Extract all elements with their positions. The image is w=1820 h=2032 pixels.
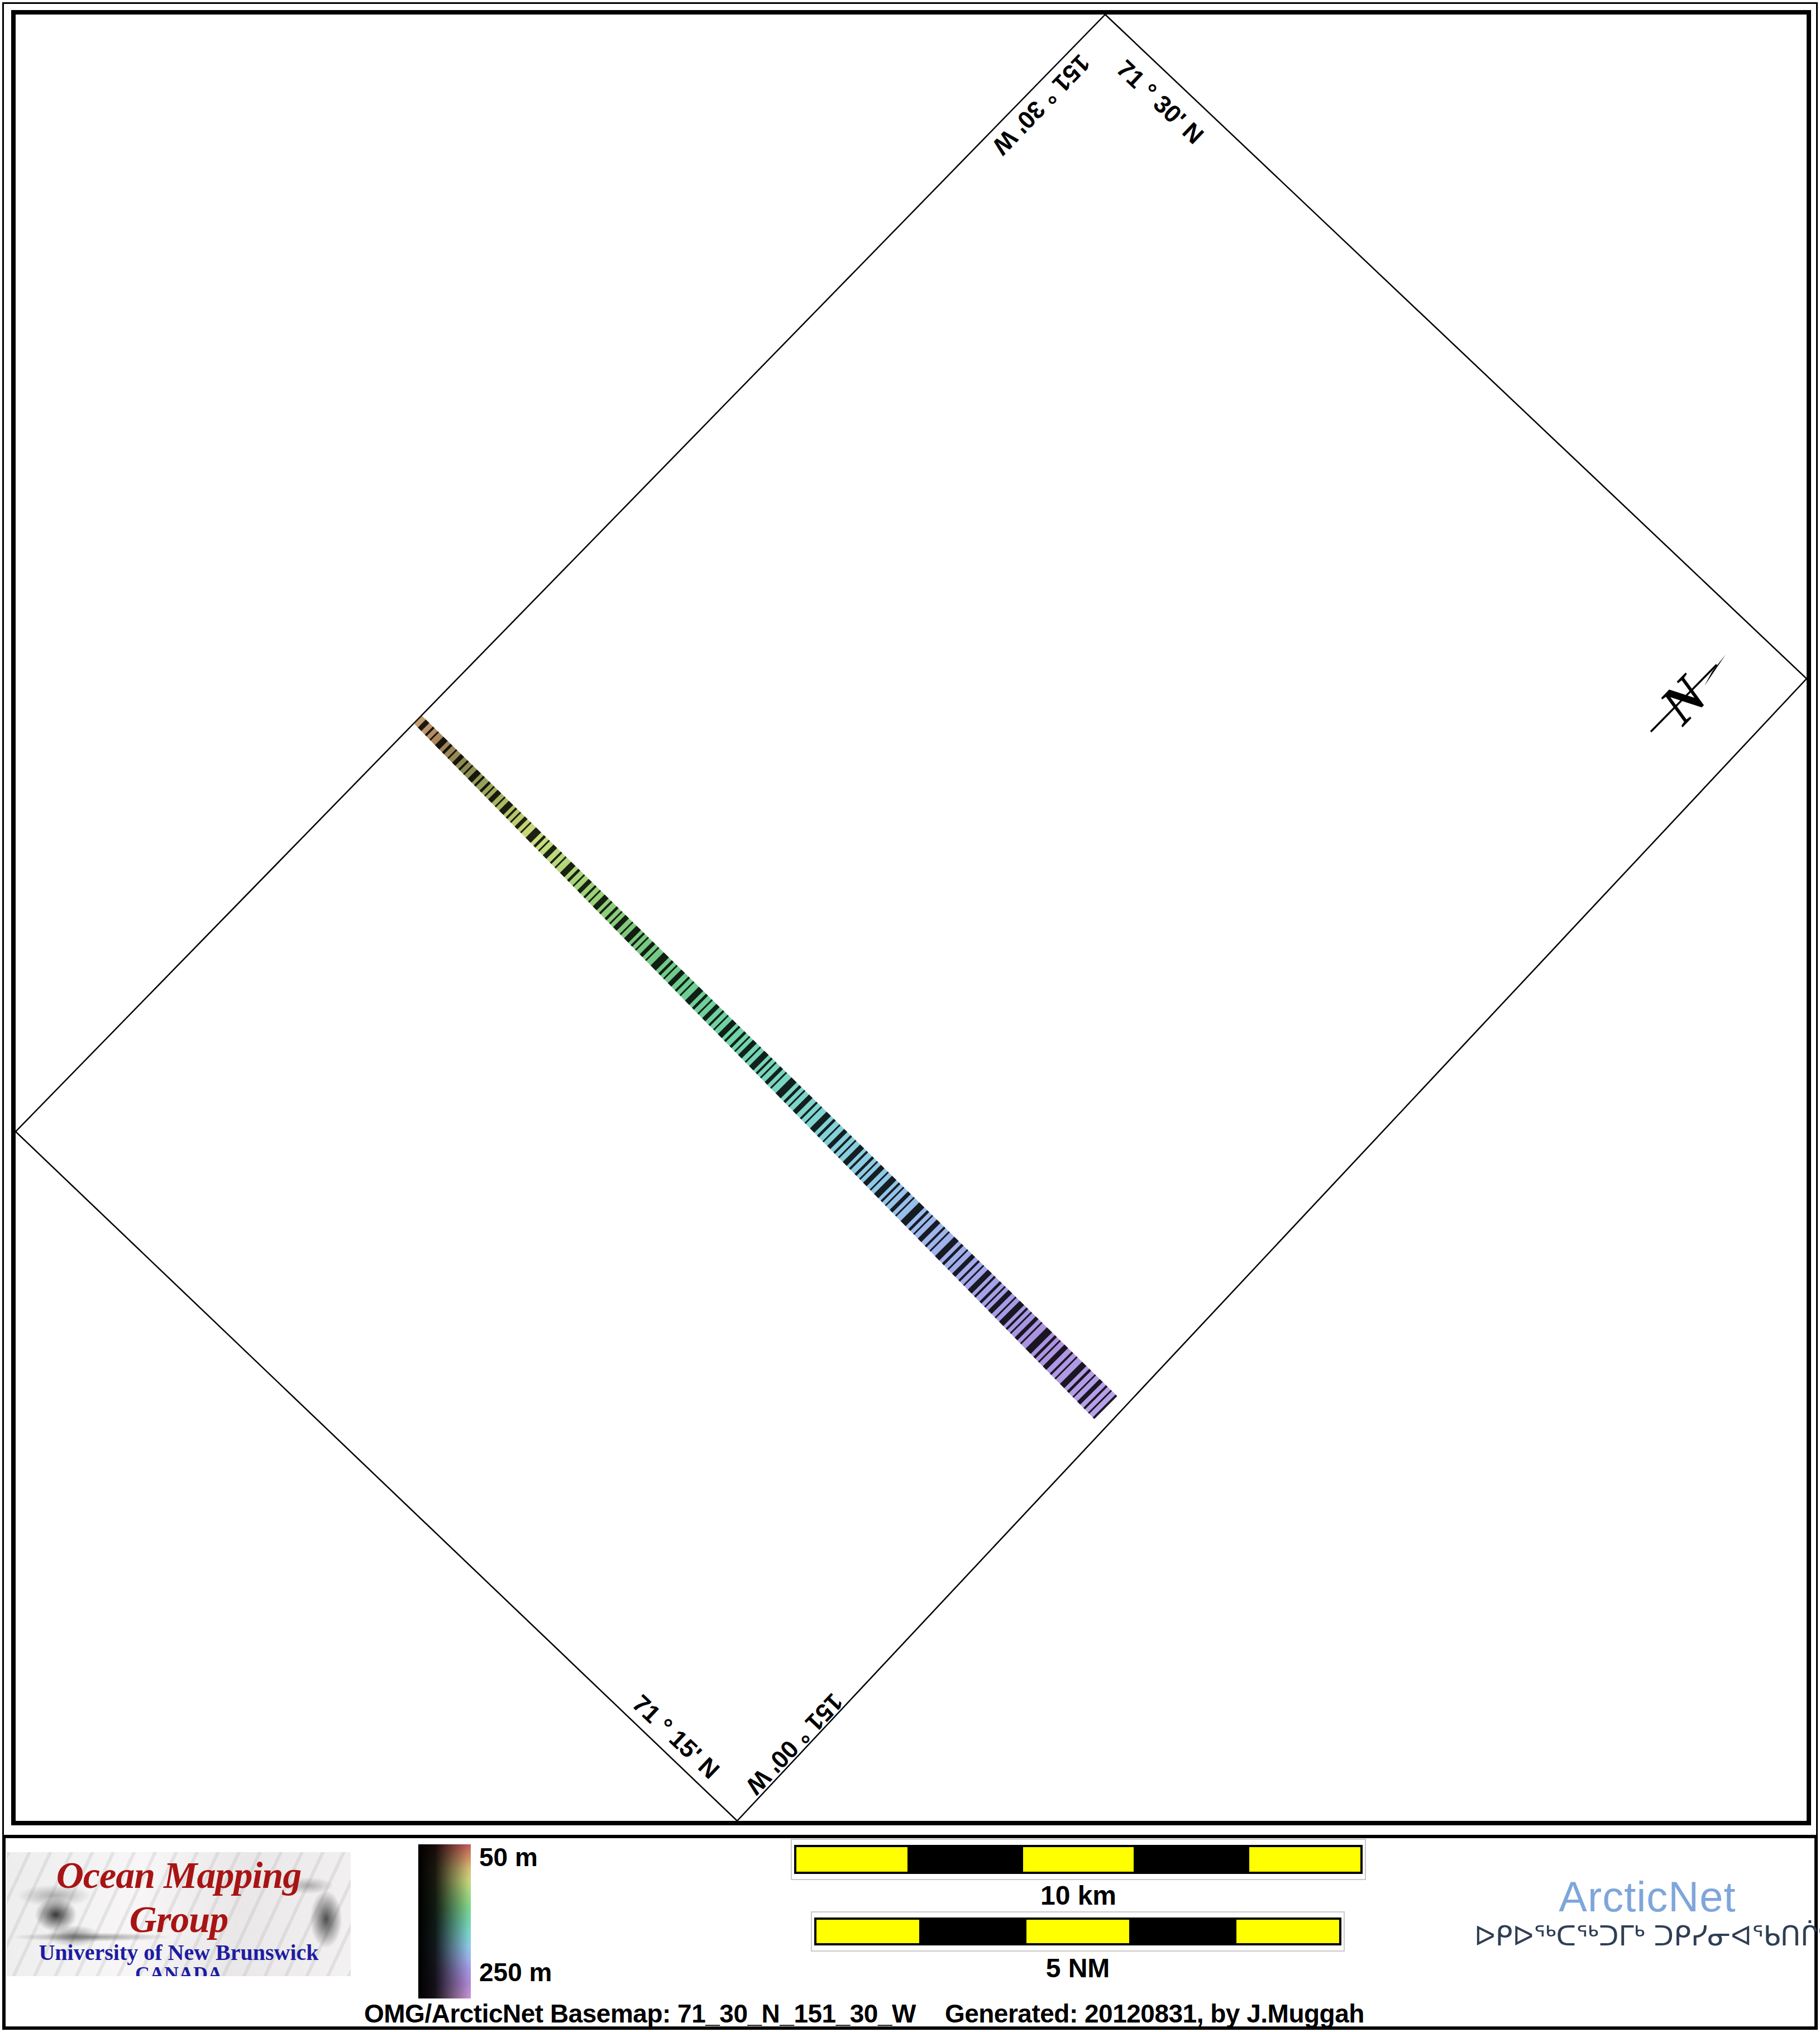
- caption-generated: Generated: 20120831, by J.Muggah: [945, 1998, 1364, 2029]
- label-latitude-top: 71 ° 30' N: [1111, 55, 1209, 149]
- scalebar-segment: [794, 1845, 910, 1874]
- scalebar-segment: [1131, 1917, 1234, 1945]
- scalebar-segment: [1247, 1845, 1363, 1874]
- label-latitude-bottom: 71 ° 15' N: [627, 1690, 725, 1784]
- caption-basemap-id: OMG/ArcticNet Basemap: 71_30_N_151_30_W: [364, 1998, 916, 2029]
- scalebar-segment: [921, 1917, 1024, 1945]
- scalebar-segment: [1024, 1917, 1131, 1945]
- scalebar-segment: [1021, 1845, 1136, 1874]
- map-canvas: 151 ° 30' W 71 ° 30' N 71 ° 15' N 151 ° …: [0, 0, 1820, 2032]
- scalebar-segment: [1136, 1845, 1247, 1874]
- map-frame: [13, 12, 1809, 1823]
- label-longitude-top: 151 ° 30' W: [987, 49, 1095, 160]
- scalebar-segment: [1234, 1917, 1341, 1945]
- omg-logo-title: Ocean Mapping Group: [7, 1853, 351, 1942]
- scalebar-segment: [910, 1845, 1021, 1874]
- arcticnet-logo: ArcticNet ᐅᑭᐅᖅᑕᖅᑐᒥᒃ ᑐᑭᓯᓂᐊᖃᑎᒌᑦ: [1474, 1876, 1820, 1952]
- omg-logo: Ocean Mapping Group University of New Br…: [7, 1852, 351, 1976]
- label-longitude-bottom: 151 ° 00' W: [741, 1688, 848, 1800]
- depth-min-label: 50 m: [479, 1842, 538, 1872]
- swath-data-gaps: [414, 716, 1117, 1419]
- omg-logo-country: CANADA: [7, 1962, 351, 1976]
- scalebar-nm-segments: [814, 1917, 1341, 1945]
- scalebar-nm: [811, 1911, 1345, 1952]
- north-arrow-icon: N: [1647, 655, 1726, 736]
- arcticnet-syllabics: ᐅᑭᐅᖅᑕᖅᑐᒥᒃ ᑐᑭᓯᓂᐊᖃᑎᒌᑦ: [1474, 1920, 1820, 1952]
- basemap-page: 151 ° 30' W 71 ° 30' N 71 ° 15' N 151 ° …: [0, 0, 1820, 2032]
- scalebar-segment: [814, 1917, 921, 1945]
- scalebar-km-segments: [794, 1845, 1363, 1874]
- arcticnet-wordmark: ArcticNet: [1474, 1876, 1820, 1918]
- omg-logo-university: University of New Brunswick: [7, 1939, 351, 1966]
- scalebar-km-label: 10 km: [791, 1880, 1366, 1911]
- scalebar-km: [791, 1839, 1366, 1880]
- bathymetry-swath: [414, 716, 1117, 1419]
- scalebar-nm-label: 5 NM: [811, 1953, 1345, 1983]
- caption: OMG/ArcticNet Basemap: 71_30_N_151_30_W …: [364, 1998, 1364, 2029]
- depth-colorbar: [418, 1844, 471, 1998]
- graticule-cell-outline: [16, 15, 1807, 1821]
- depth-max-label: 250 m: [479, 1957, 552, 1987]
- sheet-border: [3, 3, 1817, 2029]
- north-arrow-head: [1704, 655, 1726, 686]
